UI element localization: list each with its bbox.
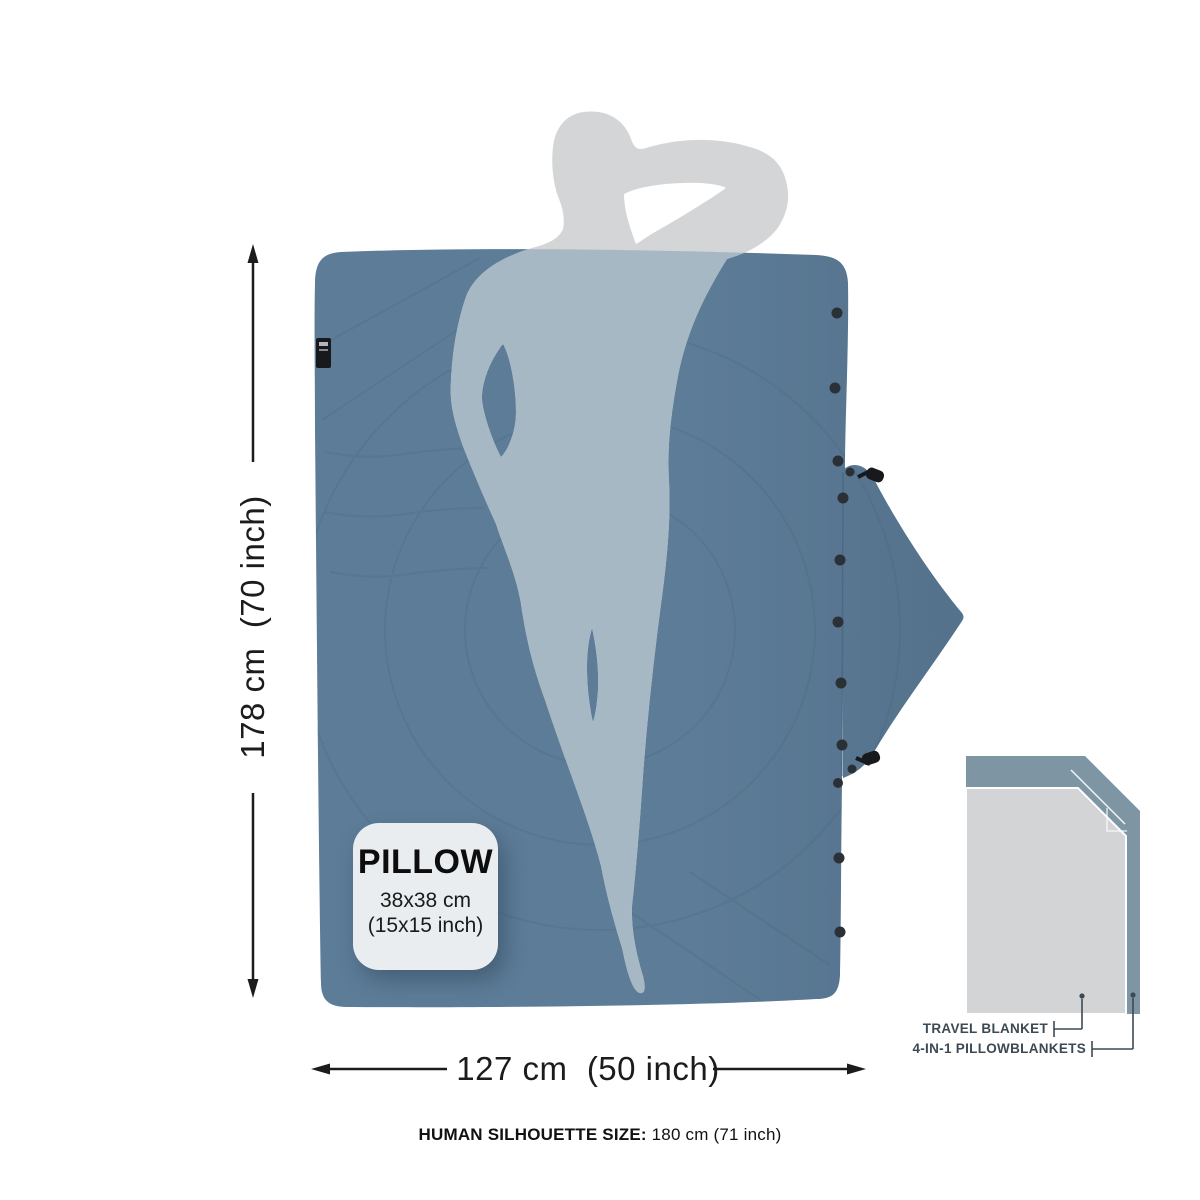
diagram-canvas	[0, 0, 1200, 1200]
blanket-shading	[690, 245, 1010, 1015]
silhouette-size-footnote: HUMAN SILHOUETTE SIZE: 180 cm (71 inch)	[300, 1125, 900, 1145]
product-dimension-diagram: 178 cm (70 inch) 127 cm (50 inch) PILLOW…	[0, 0, 1200, 1200]
travel-blanket-label: TRAVEL BLANKET	[848, 1021, 1048, 1037]
height-dimension-label: 178 cm (70 inch)	[231, 457, 275, 797]
pillow-size-inch: (15x15 inch)	[353, 913, 498, 938]
footnote-label: HUMAN SILHOUETTE SIZE:	[419, 1125, 647, 1144]
comparison-front-blanket	[966, 788, 1126, 1014]
pillow-size-cm: 38x38 cm	[353, 888, 498, 913]
size-comparison-diagram	[966, 756, 1140, 1014]
pillow-card-title: PILLOW	[353, 841, 498, 883]
width-dimension-label: 127 cm (50 inch)	[435, 1049, 741, 1089]
footnote-value: 180 cm (71 inch)	[647, 1125, 782, 1144]
pillow-size-card: PILLOW 38x38 cm (15x15 inch)	[353, 823, 498, 970]
brand-tag	[316, 338, 331, 368]
pillowblankets-label: 4-IN-1 PILLOWBLANKETS	[886, 1041, 1086, 1057]
